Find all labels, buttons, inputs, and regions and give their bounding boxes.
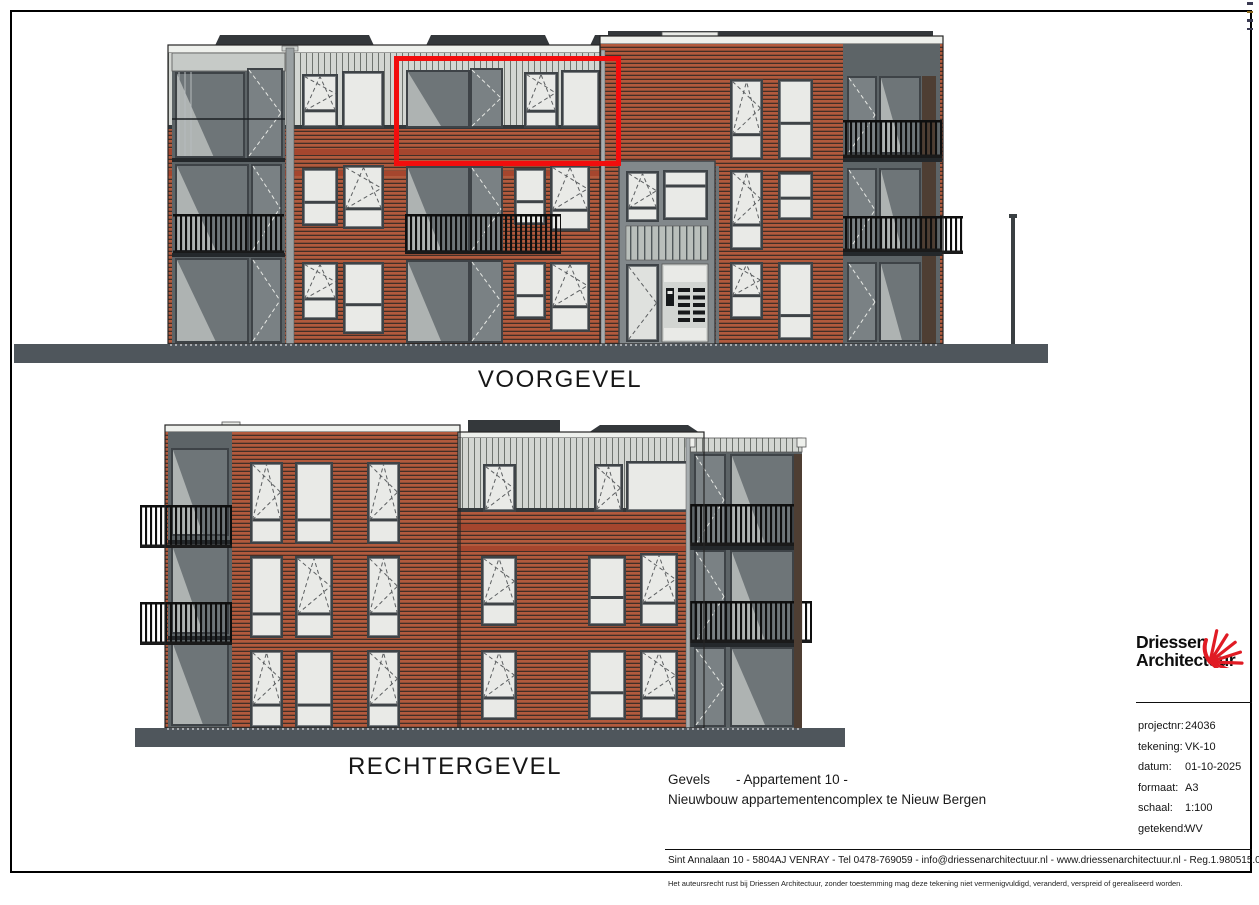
front-elevation-label: VOORGEVEL [400, 366, 720, 394]
field-getekend: getekend: WV [1138, 823, 1241, 835]
right-elevation-label: RECHTERGEVEL [295, 753, 615, 781]
architect-address: Sint Annalaan 10 - 5804AJ VENRAY - Tel 0… [668, 855, 1252, 866]
title-block-fields: projectnr: 24036 tekening: VK-10 datum: … [1138, 720, 1241, 844]
field-tekening: tekening: VK-10 [1138, 741, 1241, 753]
drawing-sheet: { "sheet": { "elevations": { "front": { … [0, 0, 1259, 900]
field-projectnr: projectnr: 24036 [1138, 720, 1241, 732]
elevation-drawings [0, 0, 1259, 900]
drawing-apartment: - Appartement 10 - [736, 772, 848, 787]
apartment-10-highlight-box [394, 56, 621, 166]
drawing-type: Gevels [668, 772, 710, 787]
drawing-project: Nieuwbouw appartementencomplex te Nieuw … [668, 792, 986, 807]
title-block-divider [1136, 702, 1252, 703]
field-formaat: formaat: A3 [1138, 782, 1241, 794]
field-schaal: schaal: 1:100 [1138, 802, 1241, 814]
address-divider [665, 849, 1252, 850]
drawing-info: Gevels - Appartement 10 - Nieuwbouw appa… [668, 772, 986, 807]
copyright-notice: Het auteursrecht rust bij Driessen Archi… [668, 879, 1182, 888]
front-and-right-elevation-drawing [0, 0, 1259, 900]
driessen-logo-icon [1198, 626, 1254, 668]
field-datum: datum: 01-10-2025 [1138, 761, 1241, 773]
page-edge-marks [1247, 2, 1255, 36]
